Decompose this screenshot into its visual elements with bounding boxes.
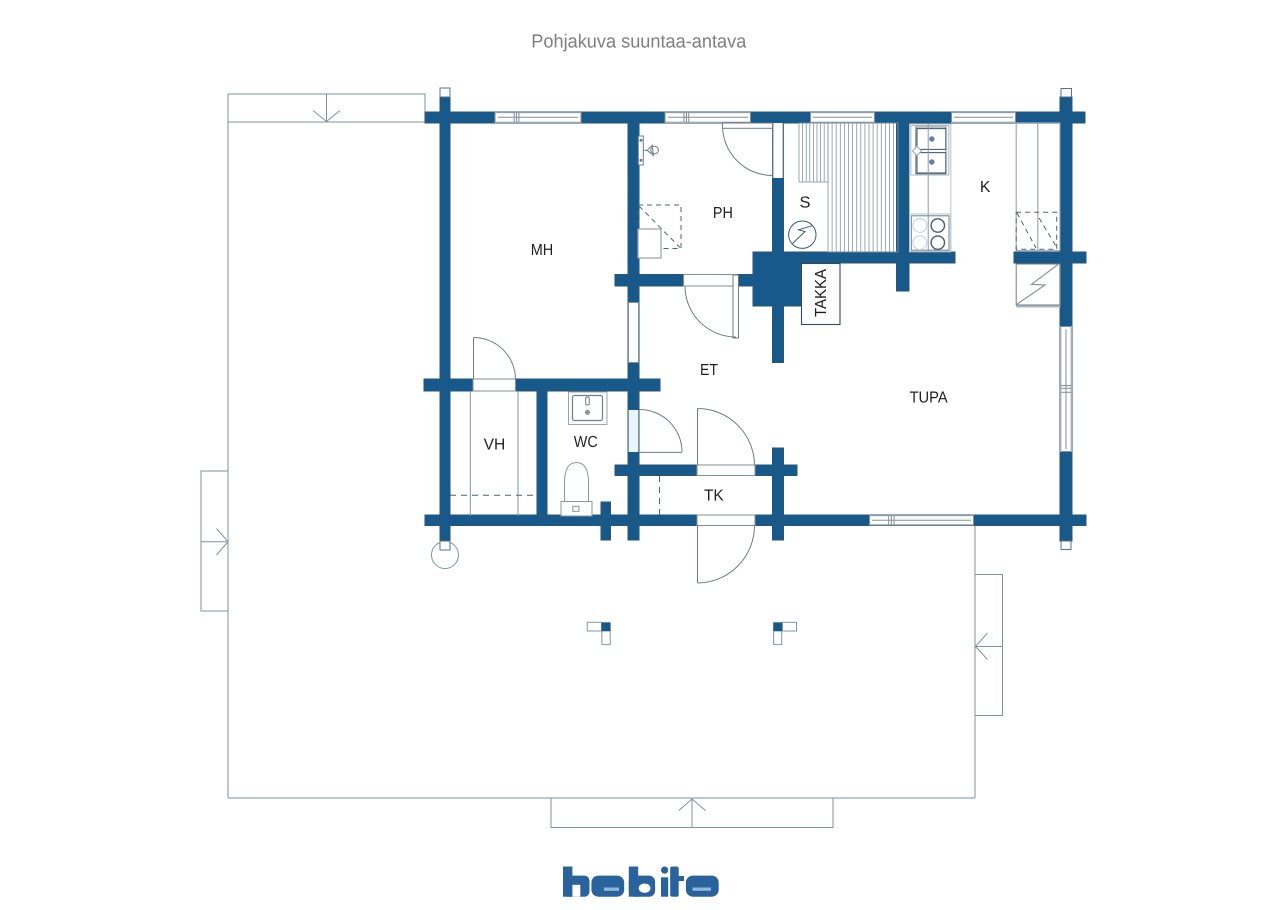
svg-text:PH: PH xyxy=(713,205,733,222)
svg-text:Pohjakuva suuntaa-antava: Pohjakuva suuntaa-antava xyxy=(531,32,746,53)
svg-text:ET: ET xyxy=(700,362,718,379)
svg-text:VH: VH xyxy=(484,437,506,454)
svg-text:WC: WC xyxy=(574,434,598,451)
svg-text:TAKKA: TAKKA xyxy=(813,269,830,317)
svg-text:K: K xyxy=(980,179,991,196)
svg-text:MH: MH xyxy=(531,242,554,259)
svg-text:TUPA: TUPA xyxy=(910,390,948,407)
svg-text:TK: TK xyxy=(704,488,724,505)
svg-text:S: S xyxy=(800,195,811,212)
